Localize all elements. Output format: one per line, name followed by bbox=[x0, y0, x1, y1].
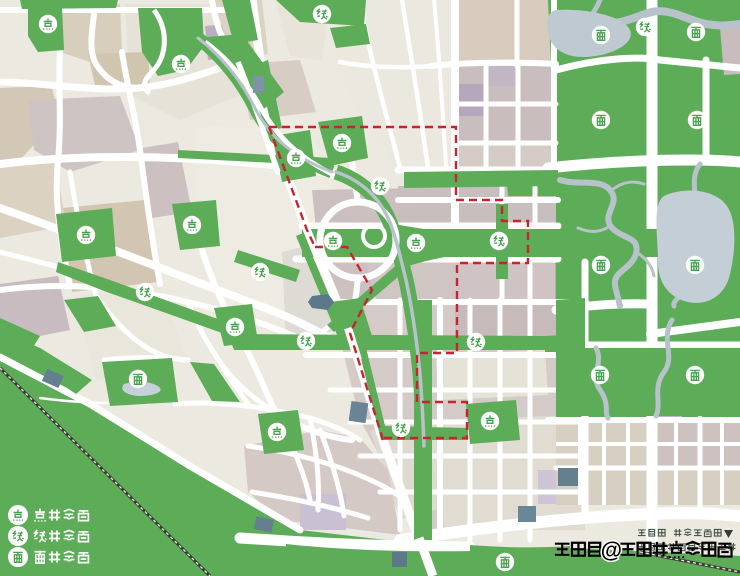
svg-text:@: @ bbox=[601, 538, 622, 563]
